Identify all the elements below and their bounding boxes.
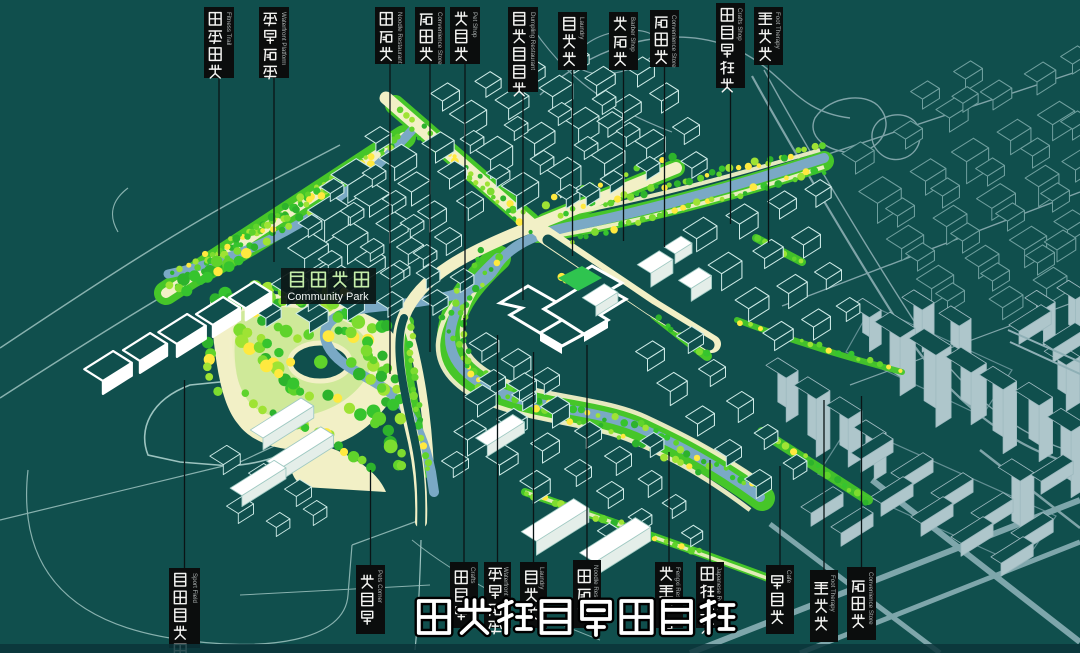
svg-text:Pets Corner: Pets Corner [376,570,383,603]
svg-text:Barber Shop: Barber Shop [629,17,636,52]
svg-text:Crafts Shop: Crafts Shop [736,8,743,41]
svg-text:Fitness Trail: Fitness Trail [225,12,232,45]
svg-text:Convenience Store: Convenience Store [436,12,443,65]
svg-text:Community Park: Community Park [287,291,369,303]
svg-text:Cafe: Cafe [785,570,792,584]
svg-text:Laundry: Laundry [538,567,545,590]
svg-text:Pet Shop: Pet Shop [471,12,478,38]
svg-text:Convenience Store: Convenience Store [867,572,874,625]
svg-text:Waterfront: Waterfront [502,567,509,596]
svg-text:Crafts: Crafts [469,567,476,584]
svg-text:Foot Therapy: Foot Therapy [829,575,836,613]
svg-text:Dumpling Restaurant: Dumpling Restaurant [529,12,536,70]
svg-text:Sport Field: Sport Field [191,573,198,603]
svg-text:Noodle Restaurant: Noodle Restaurant [396,12,403,64]
svg-text:Convenience Store: Convenience Store [670,15,677,68]
svg-text:Laundry: Laundry [578,17,585,40]
svg-text:Waterfront Platform: Waterfront Platform [280,12,287,65]
svg-text:Foot Therapy: Foot Therapy [774,12,781,50]
svg-text:Noodle Rest.: Noodle Rest. [592,565,599,601]
